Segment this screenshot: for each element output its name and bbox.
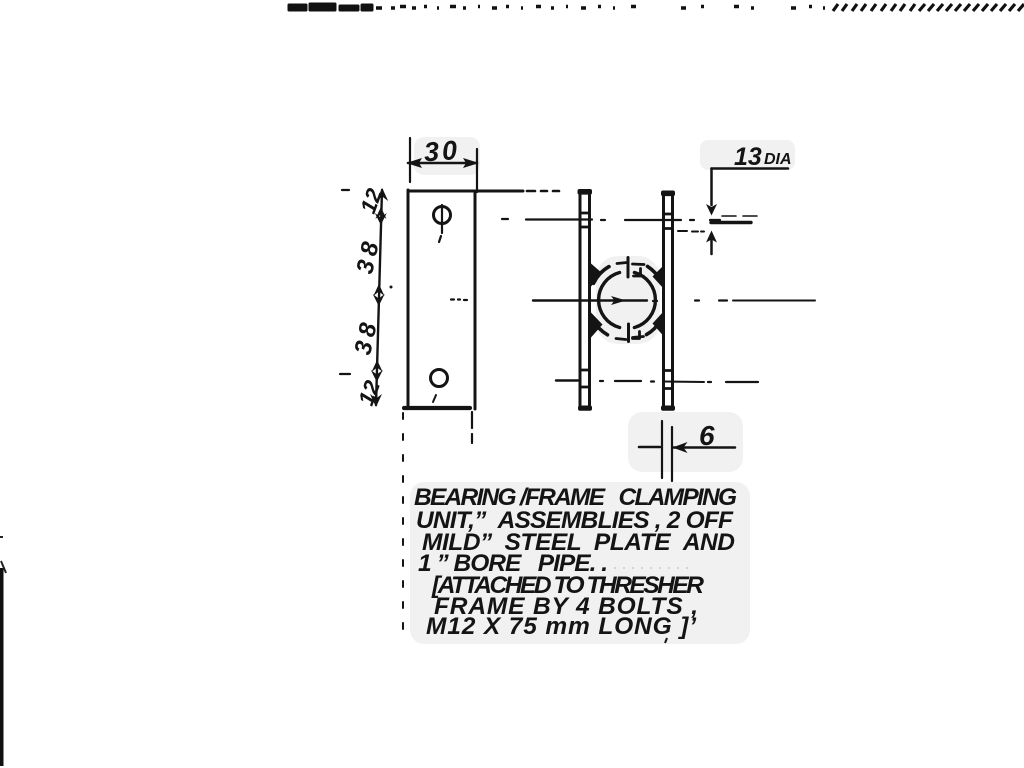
svg-text:13: 13 xyxy=(734,143,762,171)
svg-text:DIA: DIA xyxy=(764,151,792,168)
svg-text:6: 6 xyxy=(699,420,715,451)
svg-text:30: 30 xyxy=(423,135,461,167)
svg-text:12: 12 xyxy=(353,376,385,408)
svg-text:M12 X 75 mm LONG ]’: M12 X 75 mm LONG ]’ xyxy=(426,613,697,640)
